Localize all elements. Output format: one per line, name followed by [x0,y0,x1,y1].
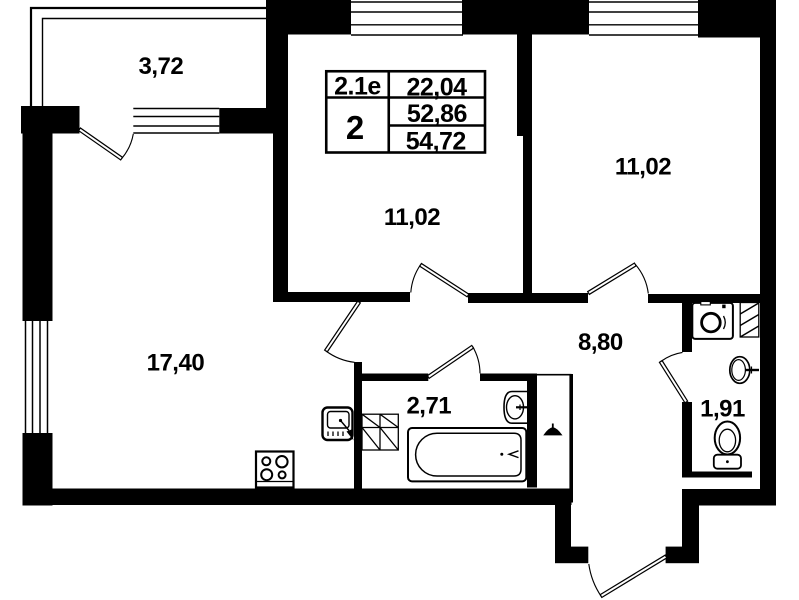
svg-text:22,04: 22,04 [406,74,467,102]
svg-text:11,02: 11,02 [615,154,671,181]
svg-text:17,40: 17,40 [147,350,205,377]
svg-text:2: 2 [346,109,364,146]
svg-text:11,02: 11,02 [384,204,440,231]
svg-text:2,71: 2,71 [406,393,451,420]
svg-text:1,91: 1,91 [700,395,745,422]
svg-text:54,72: 54,72 [406,128,466,156]
svg-text:8,80: 8,80 [578,329,623,356]
svg-text:2.1e: 2.1e [334,73,381,101]
svg-text:3,72: 3,72 [139,53,184,80]
svg-text:52,86: 52,86 [407,100,467,128]
